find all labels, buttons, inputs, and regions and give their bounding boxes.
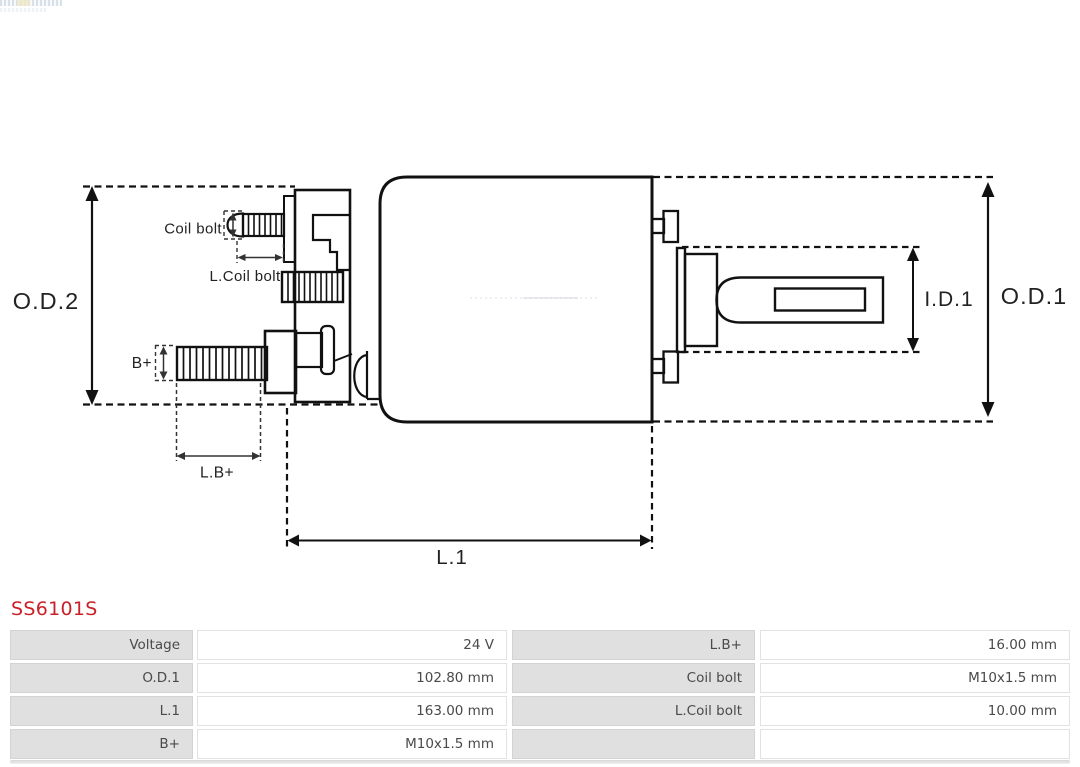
dim-label-od1: O.D.1 [1001,283,1067,309]
b-plus-stud [177,331,296,393]
spec-label-cell [512,729,755,759]
spec-table-row: O.D.1102.80 mmCoil boltM10x1.5 mm [10,663,1080,693]
spec-value-cell: M10x1.5 mm [197,729,507,759]
spec-value-cell: 102.80 mm [197,663,507,693]
dim-label-od2: O.D.2 [13,288,79,314]
spec-label-cell: B+ [10,729,193,759]
spec-label-cell: L.1 [10,696,193,726]
terminal-tabs [652,211,678,383]
spec-label-cell: L.Coil bolt [512,696,755,726]
page: O.D.2 [0,0,1080,767]
spec-value-cell: 163.00 mm [197,696,507,726]
spec-table-row: L.1163.00 mmL.Coil bolt10.00 mm [10,696,1080,726]
spec-table: Voltage24 VL.B+16.00 mmO.D.1102.80 mmCoi… [0,630,1080,762]
dimension-l-coil-bolt [237,241,284,263]
part-number: SS6101S [11,598,98,620]
spec-value-cell [760,729,1070,759]
dim-label-coil-bolt: Coil bolt [164,221,222,238]
solenoid-body [380,177,652,422]
spec-label-cell: O.D.1 [10,663,193,693]
dimension-l1 [287,408,652,549]
dim-label-b-plus: B+ [132,355,152,372]
plunger [677,248,883,352]
table-bottom-divider [10,760,1070,764]
solenoid-dimension-diagram: O.D.2 [0,0,1080,595]
spec-label-cell: L.B+ [512,630,755,660]
dimension-l-b-plus [177,383,261,461]
spec-label-cell: Voltage [10,630,193,660]
spec-value-cell: 24 V [197,630,507,660]
spec-label-cell: Coil bolt [512,663,755,693]
dim-label-l1: L.1 [436,546,468,569]
spec-value-cell: 16.00 mm [760,630,1070,660]
spec-table-row: Voltage24 VL.B+16.00 mm [10,630,1080,660]
dimension-b-plus [155,345,173,381]
dim-label-l-b-plus: L.B+ [200,465,234,482]
coil-bolt-stud [228,214,285,237]
dim-label-l-coil-bolt: L.Coil bolt [209,268,281,285]
dim-label-id1: I.D.1 [924,288,973,311]
spec-table-row: B+M10x1.5 mm [10,729,1080,759]
spec-value-cell: M10x1.5 mm [760,663,1070,693]
spec-value-cell: 10.00 mm [760,696,1070,726]
